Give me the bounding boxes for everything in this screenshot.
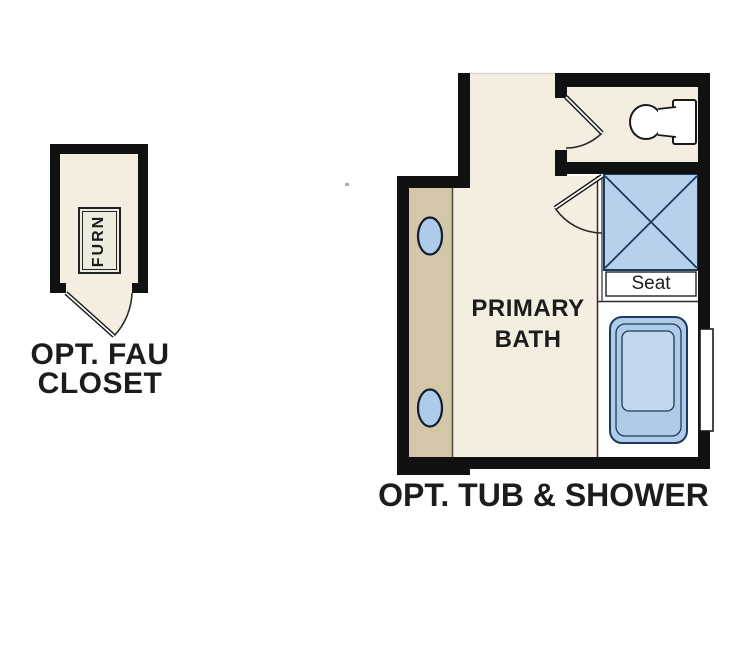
closet-door-opening (66, 283, 132, 293)
wall-bottom (397, 457, 710, 469)
toilet-tank (673, 100, 696, 144)
option-caption: OPT. TUB & SHOWER (355, 477, 732, 514)
wall-toilet-top (555, 73, 710, 87)
toilet-bowl (630, 105, 662, 139)
stray-dot (345, 183, 349, 186)
floor-plan: FURN OPT. FAU CLOSET PRIMARY BATH Seat O… (0, 0, 732, 660)
furnace-unit-inner-border: FURN (82, 211, 117, 270)
fau-closet-label-line1: OPT. FAU (5, 340, 195, 369)
sink-upper (418, 218, 442, 255)
seat-label: Seat (606, 272, 696, 296)
primary-bath-label-line2: BATH (432, 324, 624, 355)
primary-bath-label: PRIMARY BATH (432, 293, 624, 355)
wall-toilet-bottom (555, 162, 710, 174)
toilet-neck (658, 108, 674, 136)
toilet-doorway-floor (555, 98, 567, 150)
sink-lower (418, 390, 442, 427)
fau-closet-label-line2: CLOSET (5, 369, 195, 398)
fau-closet-label: OPT. FAU CLOSET (5, 340, 195, 398)
window (700, 329, 713, 431)
furnace-unit: FURN (78, 207, 121, 274)
bath-entry-alcove-floor (470, 73, 557, 176)
bathtub-basin (622, 331, 674, 411)
wall-toilet-door-stub-upper (555, 73, 567, 98)
wall-upper-left-vertical (458, 73, 470, 188)
primary-bath-label-line1: PRIMARY (432, 293, 624, 324)
wall-left (397, 176, 409, 469)
wall-bottom-left-step (397, 469, 470, 475)
furnace-label: FURN (91, 214, 109, 266)
